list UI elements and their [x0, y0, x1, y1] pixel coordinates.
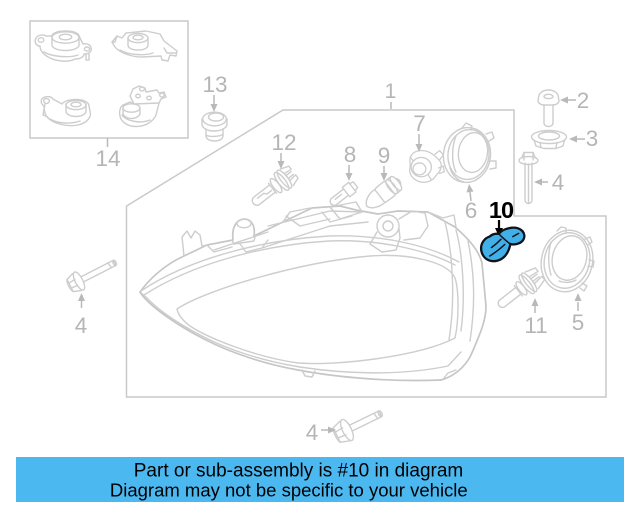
- svg-text:3: 3: [586, 126, 599, 151]
- svg-text:4: 4: [552, 170, 565, 195]
- svg-text:13: 13: [202, 72, 227, 97]
- svg-text:Diagram may not be specific to: Diagram may not be specific to your vehi…: [110, 480, 468, 501]
- svg-text:9: 9: [378, 143, 391, 168]
- svg-text:4: 4: [306, 420, 319, 445]
- svg-text:4: 4: [75, 313, 88, 338]
- svg-text:12: 12: [271, 130, 296, 155]
- svg-text:11: 11: [524, 313, 547, 338]
- svg-text:14: 14: [95, 146, 120, 171]
- svg-text:7: 7: [413, 111, 426, 136]
- svg-text:6: 6: [465, 198, 478, 223]
- svg-text:1: 1: [385, 80, 397, 103]
- svg-text:Part or sub-assembly is #10 in: Part or sub-assembly is #10 in diagram: [134, 461, 463, 482]
- svg-text:2: 2: [577, 88, 590, 113]
- svg-text:5: 5: [572, 310, 585, 335]
- svg-text:8: 8: [344, 142, 357, 167]
- svg-text:10: 10: [489, 197, 514, 223]
